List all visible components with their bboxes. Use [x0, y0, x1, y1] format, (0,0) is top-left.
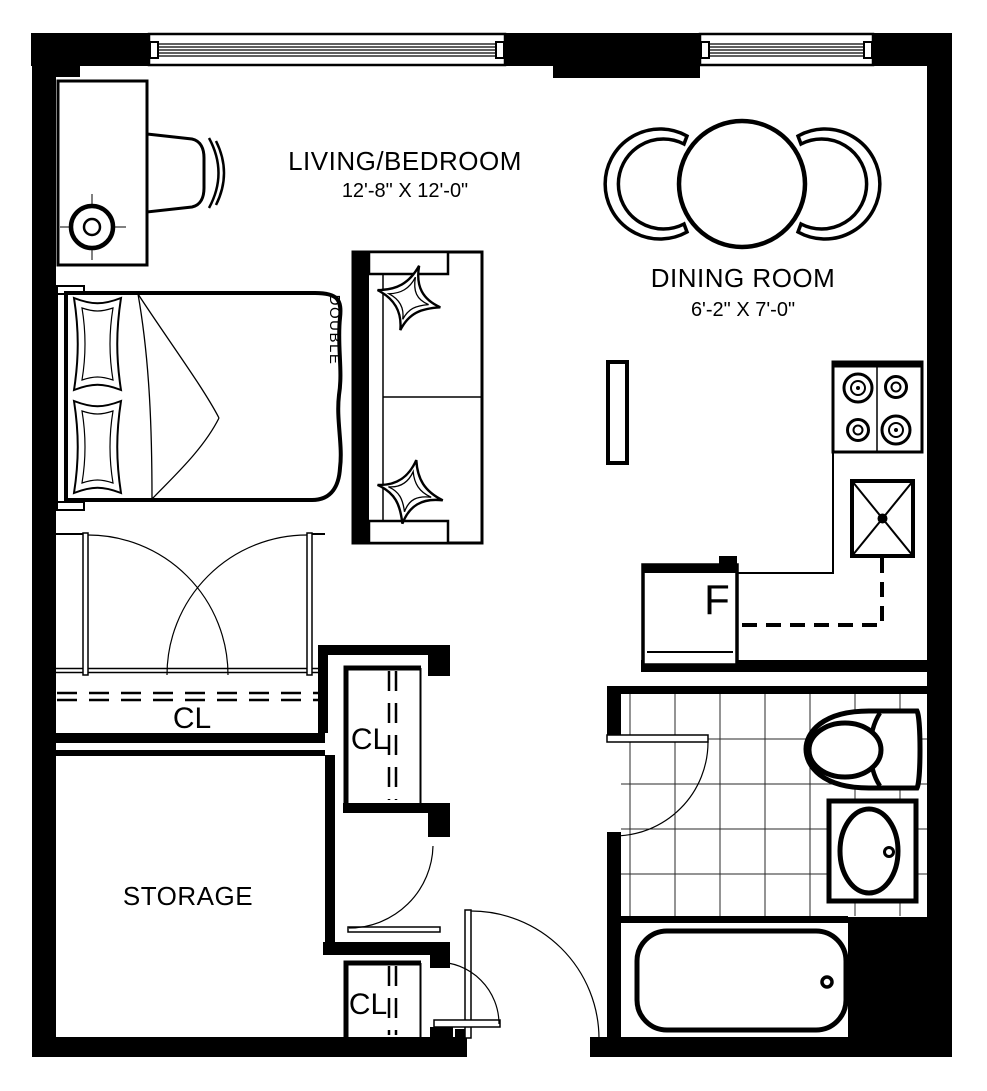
bathroom-left-wall-upper	[607, 687, 621, 737]
bathroom-left-wall-lower	[607, 832, 621, 1037]
dining-room-dims: 6'-2" X 7'-0"	[691, 299, 795, 321]
bed	[57, 286, 341, 510]
counter-edge	[737, 452, 833, 573]
window-top-left	[149, 34, 505, 65]
kitchen-sink	[852, 481, 913, 556]
closet-bottom-wall-inner	[56, 750, 325, 756]
door-leaf	[434, 1020, 500, 1027]
dining-table	[679, 121, 805, 247]
storage-right-wall	[325, 755, 335, 945]
hall-closet-bottom-hook	[428, 813, 450, 837]
door-swing-arc	[88, 535, 228, 675]
storage-door	[349, 846, 433, 928]
entry-closet-header	[348, 927, 440, 932]
window-end-cap	[701, 42, 709, 58]
window-top-right	[700, 34, 873, 65]
door-leaf	[83, 533, 88, 675]
closet-label-entry: CL	[349, 988, 387, 1021]
sofa-armrest	[369, 252, 448, 274]
bathtub	[637, 931, 846, 1030]
left-exterior-wall	[32, 33, 56, 1057]
bottom-right-wall	[590, 1037, 848, 1057]
toilet	[806, 711, 920, 788]
top-left-wall-block	[31, 33, 149, 66]
window-end-cap	[150, 42, 158, 58]
door-swing-arc	[614, 742, 708, 836]
kitchen	[643, 362, 922, 665]
desk-chair	[147, 134, 224, 212]
closet-label-bedroom: CL	[173, 702, 211, 735]
entry-closet-right-jamb	[430, 1027, 453, 1037]
bathroom-door	[607, 735, 708, 836]
closet-label-hall: CL	[351, 723, 389, 756]
closet-french-doors	[56, 533, 325, 675]
door-swing-arc	[349, 846, 433, 928]
fridge-label: F	[704, 576, 730, 623]
bottom-left-wall	[32, 1037, 467, 1057]
top-left-wall-step	[33, 66, 80, 77]
entry-door	[465, 910, 599, 1038]
door-leaf	[465, 910, 471, 1038]
window-glazing-lines	[158, 44, 496, 56]
right-exterior-wall	[927, 33, 952, 1057]
bed-size-label: DOUBLE	[326, 295, 343, 366]
dining-chair-right	[798, 129, 880, 239]
toilet-bowl	[809, 723, 881, 777]
dining-chair-left	[605, 129, 687, 239]
sofa	[353, 252, 482, 543]
hall-closet-top-hook	[428, 655, 450, 676]
window-glazing-lines	[709, 44, 864, 56]
floor-plan-svg: LIVING/BEDROOM 12'-8" X 12'-0" DINING RO…	[0, 0, 987, 1091]
dining-partition-stub	[608, 362, 627, 463]
top-middle-wall-block	[505, 33, 700, 66]
living-bedroom-label: LIVING/BEDROOM	[288, 146, 522, 176]
door-swing-arc	[167, 535, 307, 675]
sink-faucet	[885, 848, 894, 857]
fridge-top-edge	[643, 564, 737, 573]
window-end-cap	[864, 42, 872, 58]
hall-closet-bottom-wall	[343, 803, 450, 813]
sofa-back	[353, 252, 369, 543]
door-leaf	[607, 735, 708, 742]
fridge-hinge-tab	[719, 556, 737, 565]
sofa-armrest	[369, 521, 448, 543]
storage-label: STORAGE	[123, 881, 253, 911]
door-leaf	[307, 533, 312, 675]
headboard-cap	[57, 502, 84, 510]
living-bedroom-dims: 12'-8" X 12'-0"	[342, 180, 468, 202]
bathroom-sink-vanity	[829, 801, 916, 901]
lamp-inner-circle	[84, 219, 100, 235]
window-end-cap	[496, 42, 504, 58]
tub-faucet	[822, 977, 832, 987]
dining-room-label: DINING ROOM	[651, 263, 836, 293]
entry-closet-top-wall	[323, 942, 450, 955]
mattress	[66, 293, 341, 500]
floor-plan-page: LIVING/BEDROOM 12'-8" X 12'-0" DINING RO…	[0, 0, 987, 1091]
bedroom-closet	[56, 669, 325, 701]
top-middle-wall-step	[553, 66, 700, 78]
stove	[833, 362, 922, 452]
bathroom-top-wall	[607, 686, 927, 694]
door-swing-arc	[471, 911, 599, 1038]
desk-chair-back	[209, 138, 219, 208]
desk-chair-seat	[147, 134, 204, 212]
bottom-right-corner-block	[848, 917, 952, 1057]
hall-closet-top-wall	[318, 645, 450, 655]
sink-drain	[878, 514, 888, 524]
tub-platform-edge	[621, 916, 848, 923]
desk-chair-back	[216, 141, 224, 205]
bathtub-outline	[637, 931, 846, 1030]
